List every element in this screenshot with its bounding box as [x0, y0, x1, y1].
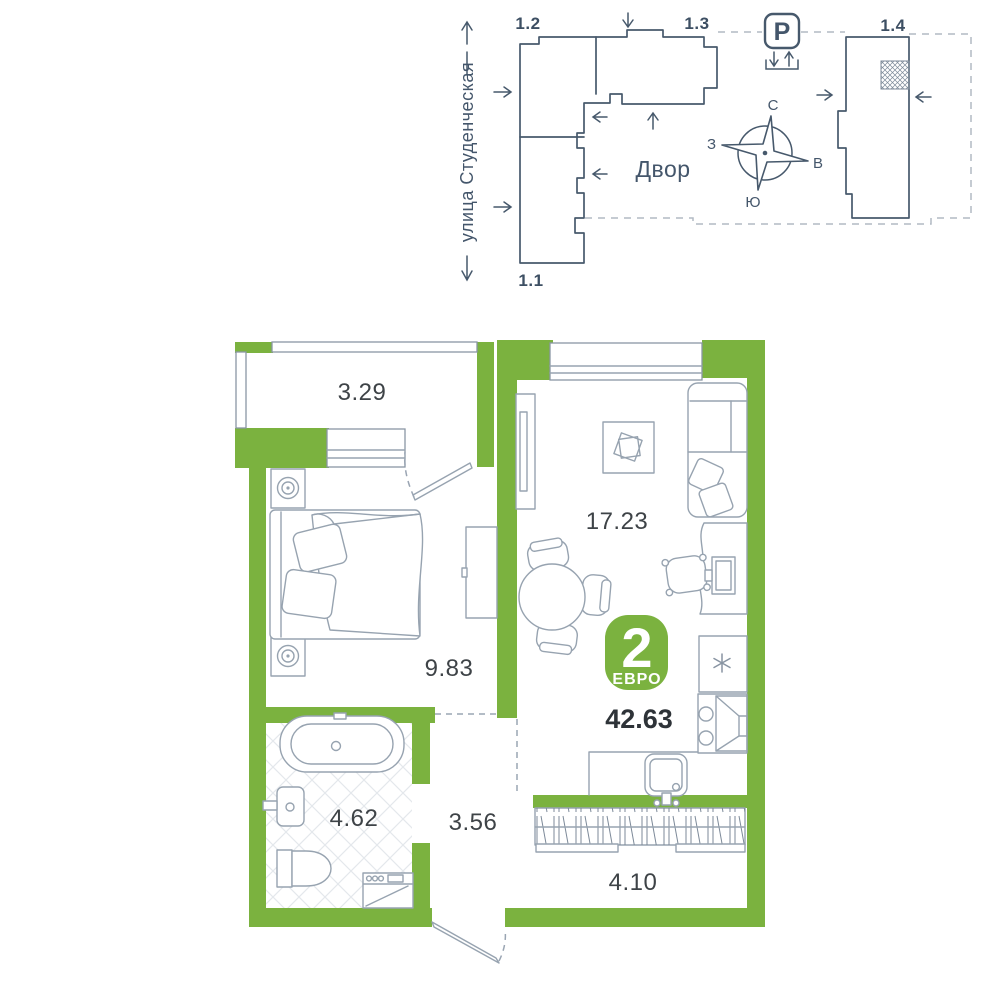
living-room-window: [550, 343, 702, 380]
stove: [698, 694, 747, 753]
nightstand: [271, 637, 305, 676]
area-label-balcony: 3.29: [338, 379, 387, 406]
label-building-1-1: 1.1: [518, 271, 543, 290]
bedroom-furniture: [270, 469, 497, 676]
bathtub: [280, 713, 404, 772]
loggia-closet: [535, 808, 745, 852]
badge-format-label: ЕВРО: [612, 671, 661, 688]
wall-segment: [249, 468, 266, 927]
label-building-1-2: 1.2: [515, 14, 540, 33]
building-outline-left: [520, 30, 717, 263]
arrow-left-icon: [593, 169, 607, 179]
parking-arrow-down: [770, 52, 778, 66]
wall-segment: [412, 843, 430, 909]
floorplan-canvas: улица Студенческая 1.2 1.3 1.1 Двор: [0, 0, 1000, 1000]
arrow-left-icon: [593, 112, 607, 122]
area-label-bedroom: 9.83: [425, 655, 474, 682]
entrance-door-leaf: [432, 922, 499, 963]
wall-segment: [505, 908, 765, 927]
courtyard-label: Двор: [635, 156, 690, 182]
bedroom-wardrobe: [462, 527, 497, 618]
parking-symbol: P: [774, 18, 791, 46]
wall-segment: [249, 908, 432, 927]
street-label: улица Студенческая: [457, 62, 477, 242]
street-arrow-down: [462, 256, 472, 280]
closet-slider: [536, 844, 618, 852]
compass-label-east: В: [813, 155, 823, 172]
street-arrow-up: [462, 22, 472, 44]
area-label-bathroom: 4.62: [330, 805, 379, 832]
arrow-right-icon: [494, 202, 511, 212]
wall-segment: [497, 340, 517, 718]
fridge: [699, 636, 747, 692]
compass-label-north: С: [768, 97, 779, 114]
dining-set: [519, 537, 612, 656]
balcony-door-swing: [405, 452, 414, 497]
arrow-left-icon: [916, 92, 931, 102]
arrow-up-icon: [648, 113, 658, 129]
area-label-hallway: 3.56: [449, 809, 498, 836]
apartment-type-badge: 2 ЕВРО 42.63: [605, 615, 673, 734]
total-area-value: 42.63: [605, 704, 673, 734]
nightstand: [271, 469, 305, 508]
badge-rooms-count: 2: [621, 616, 652, 679]
parking-icon: P: [765, 14, 799, 69]
entrance-arrows: [494, 13, 931, 212]
wall-segment: [533, 795, 765, 808]
site-plan: улица Студенческая 1.2 1.3 1.1 Двор: [457, 13, 971, 290]
coffee-table: [603, 422, 654, 473]
pillow: [281, 569, 337, 620]
apartment-plan: 3.29 17.23 9.83 4.62 3.56 4.10 2 ЕВРО 42…: [235, 340, 765, 963]
unit-location-hatch: [881, 61, 909, 89]
street-axis: улица Студенческая: [457, 22, 477, 280]
balcony-door-leaf: [413, 463, 472, 500]
area-label-living: 17.23: [586, 508, 649, 535]
floorplan-page: улица Студенческая 1.2 1.3 1.1 Двор: [0, 0, 1000, 1000]
balcony-side-window: [236, 352, 246, 428]
desk-area: [662, 523, 747, 614]
building-complex-outline: 1.2 1.3 1.1: [515, 14, 717, 290]
closet-slider: [676, 844, 745, 852]
tv-stand: [516, 394, 535, 509]
label-building-1-3: 1.3: [684, 14, 709, 33]
wall-segment: [412, 712, 430, 784]
balcony-front-window: [272, 342, 477, 352]
balcony-door-window-unit: [327, 429, 405, 467]
label-building-1-4: 1.4: [880, 16, 905, 35]
arrow-right-icon: [494, 87, 511, 97]
wall-segment: [747, 340, 765, 927]
parking-arrow-up: [785, 52, 793, 66]
sofa: [687, 383, 747, 518]
compass-rose-icon: С Ю З В: [707, 97, 823, 211]
compass-label-south: Ю: [745, 194, 760, 211]
toilet: [277, 850, 331, 887]
compass-label-west: З: [707, 136, 716, 153]
entrance-door-swing: [499, 929, 505, 961]
washing-machine: [363, 873, 413, 908]
arrow-down-icon: [623, 13, 633, 27]
bed: [270, 510, 423, 639]
dining-table: [519, 564, 585, 630]
wall-segment: [477, 342, 494, 467]
area-label-loggia: 4.10: [609, 869, 658, 896]
arrow-right-icon: [817, 90, 832, 100]
building-1-4: 1.4: [838, 16, 909, 218]
wall-segment: [235, 428, 329, 468]
